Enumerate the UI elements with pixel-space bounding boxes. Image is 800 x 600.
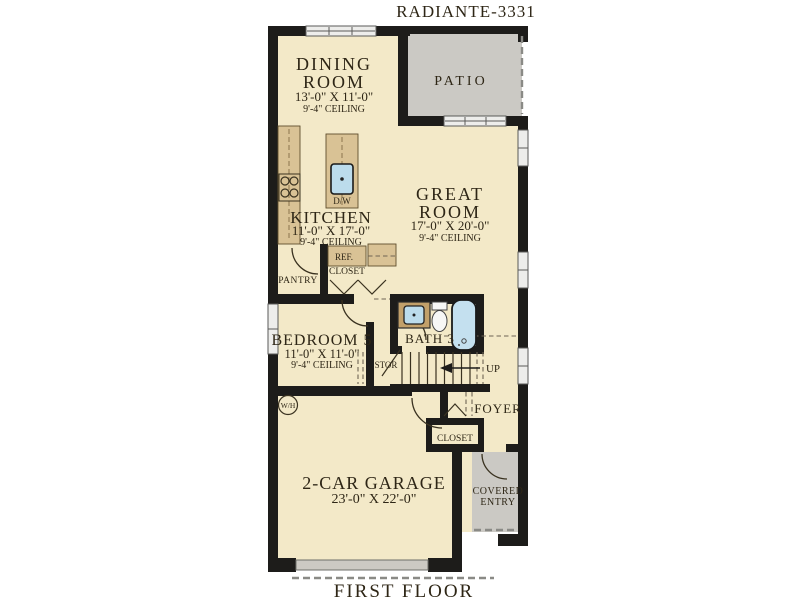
vanity-sink-icon (398, 302, 430, 328)
garage-name: 2-CAR GARAGE (302, 473, 446, 493)
foyer-window (518, 348, 528, 384)
pantry-label: PANTRY (278, 276, 318, 286)
bedroom5-ceiling: 9'-4" CEILING (291, 360, 353, 371)
great-dims: 17'-0" X 20'-0" (411, 218, 490, 233)
water-heater-label: W/H (281, 401, 296, 410)
garage-dims: 23'-0" X 22'-0" (332, 492, 417, 507)
stairs-up-label: UP (486, 363, 500, 375)
great-name-1: GREAT (416, 184, 484, 204)
bedroom5-dims: 11'-0" X 11'-0" (285, 347, 360, 361)
toilet-icon (432, 302, 447, 332)
great-room-window-lower (518, 252, 528, 288)
floor-plan-drawing: RADIANTE-3331 (0, 0, 800, 600)
floor-name: FIRST FLOOR (334, 581, 474, 600)
patio-label: PATIO (434, 74, 487, 89)
kitchen-closet-label: CLOSET (329, 267, 365, 277)
covered-entry-2: ENTRY (480, 497, 515, 508)
dining-dims: 13'-0" X 11'-0" (295, 89, 373, 104)
kitchen-sink-icon (331, 164, 353, 194)
dishwasher-label: D/W (333, 196, 351, 206)
kitchen-dims: 11'-0" X 17'-0" (292, 223, 370, 238)
floor-plan-page: RADIANTE-3331 (0, 0, 800, 600)
dining-window (306, 26, 376, 36)
kitchen-ceiling: 9'-4" CEILING (300, 237, 362, 248)
bath3-label: BATH 3 (405, 331, 455, 346)
great-room-window-upper (518, 130, 528, 166)
dining-name-1: DINING (296, 54, 372, 74)
plan-title: RADIANTE-3331 (396, 2, 536, 21)
storage-label: STOR (375, 360, 398, 370)
foyer-closet-label: CLOSET (437, 434, 473, 444)
refrigerator-label: REF. (335, 252, 353, 262)
bathtub-icon (452, 300, 476, 350)
dining-ceiling: 9'-4" CEILING (303, 104, 365, 115)
great-ceiling: 9'-4" CEILING (419, 233, 481, 244)
patio-sliding-door (444, 116, 506, 126)
covered-entry-1: COVERED (473, 486, 524, 497)
foyer-label: FOYER (474, 401, 522, 416)
